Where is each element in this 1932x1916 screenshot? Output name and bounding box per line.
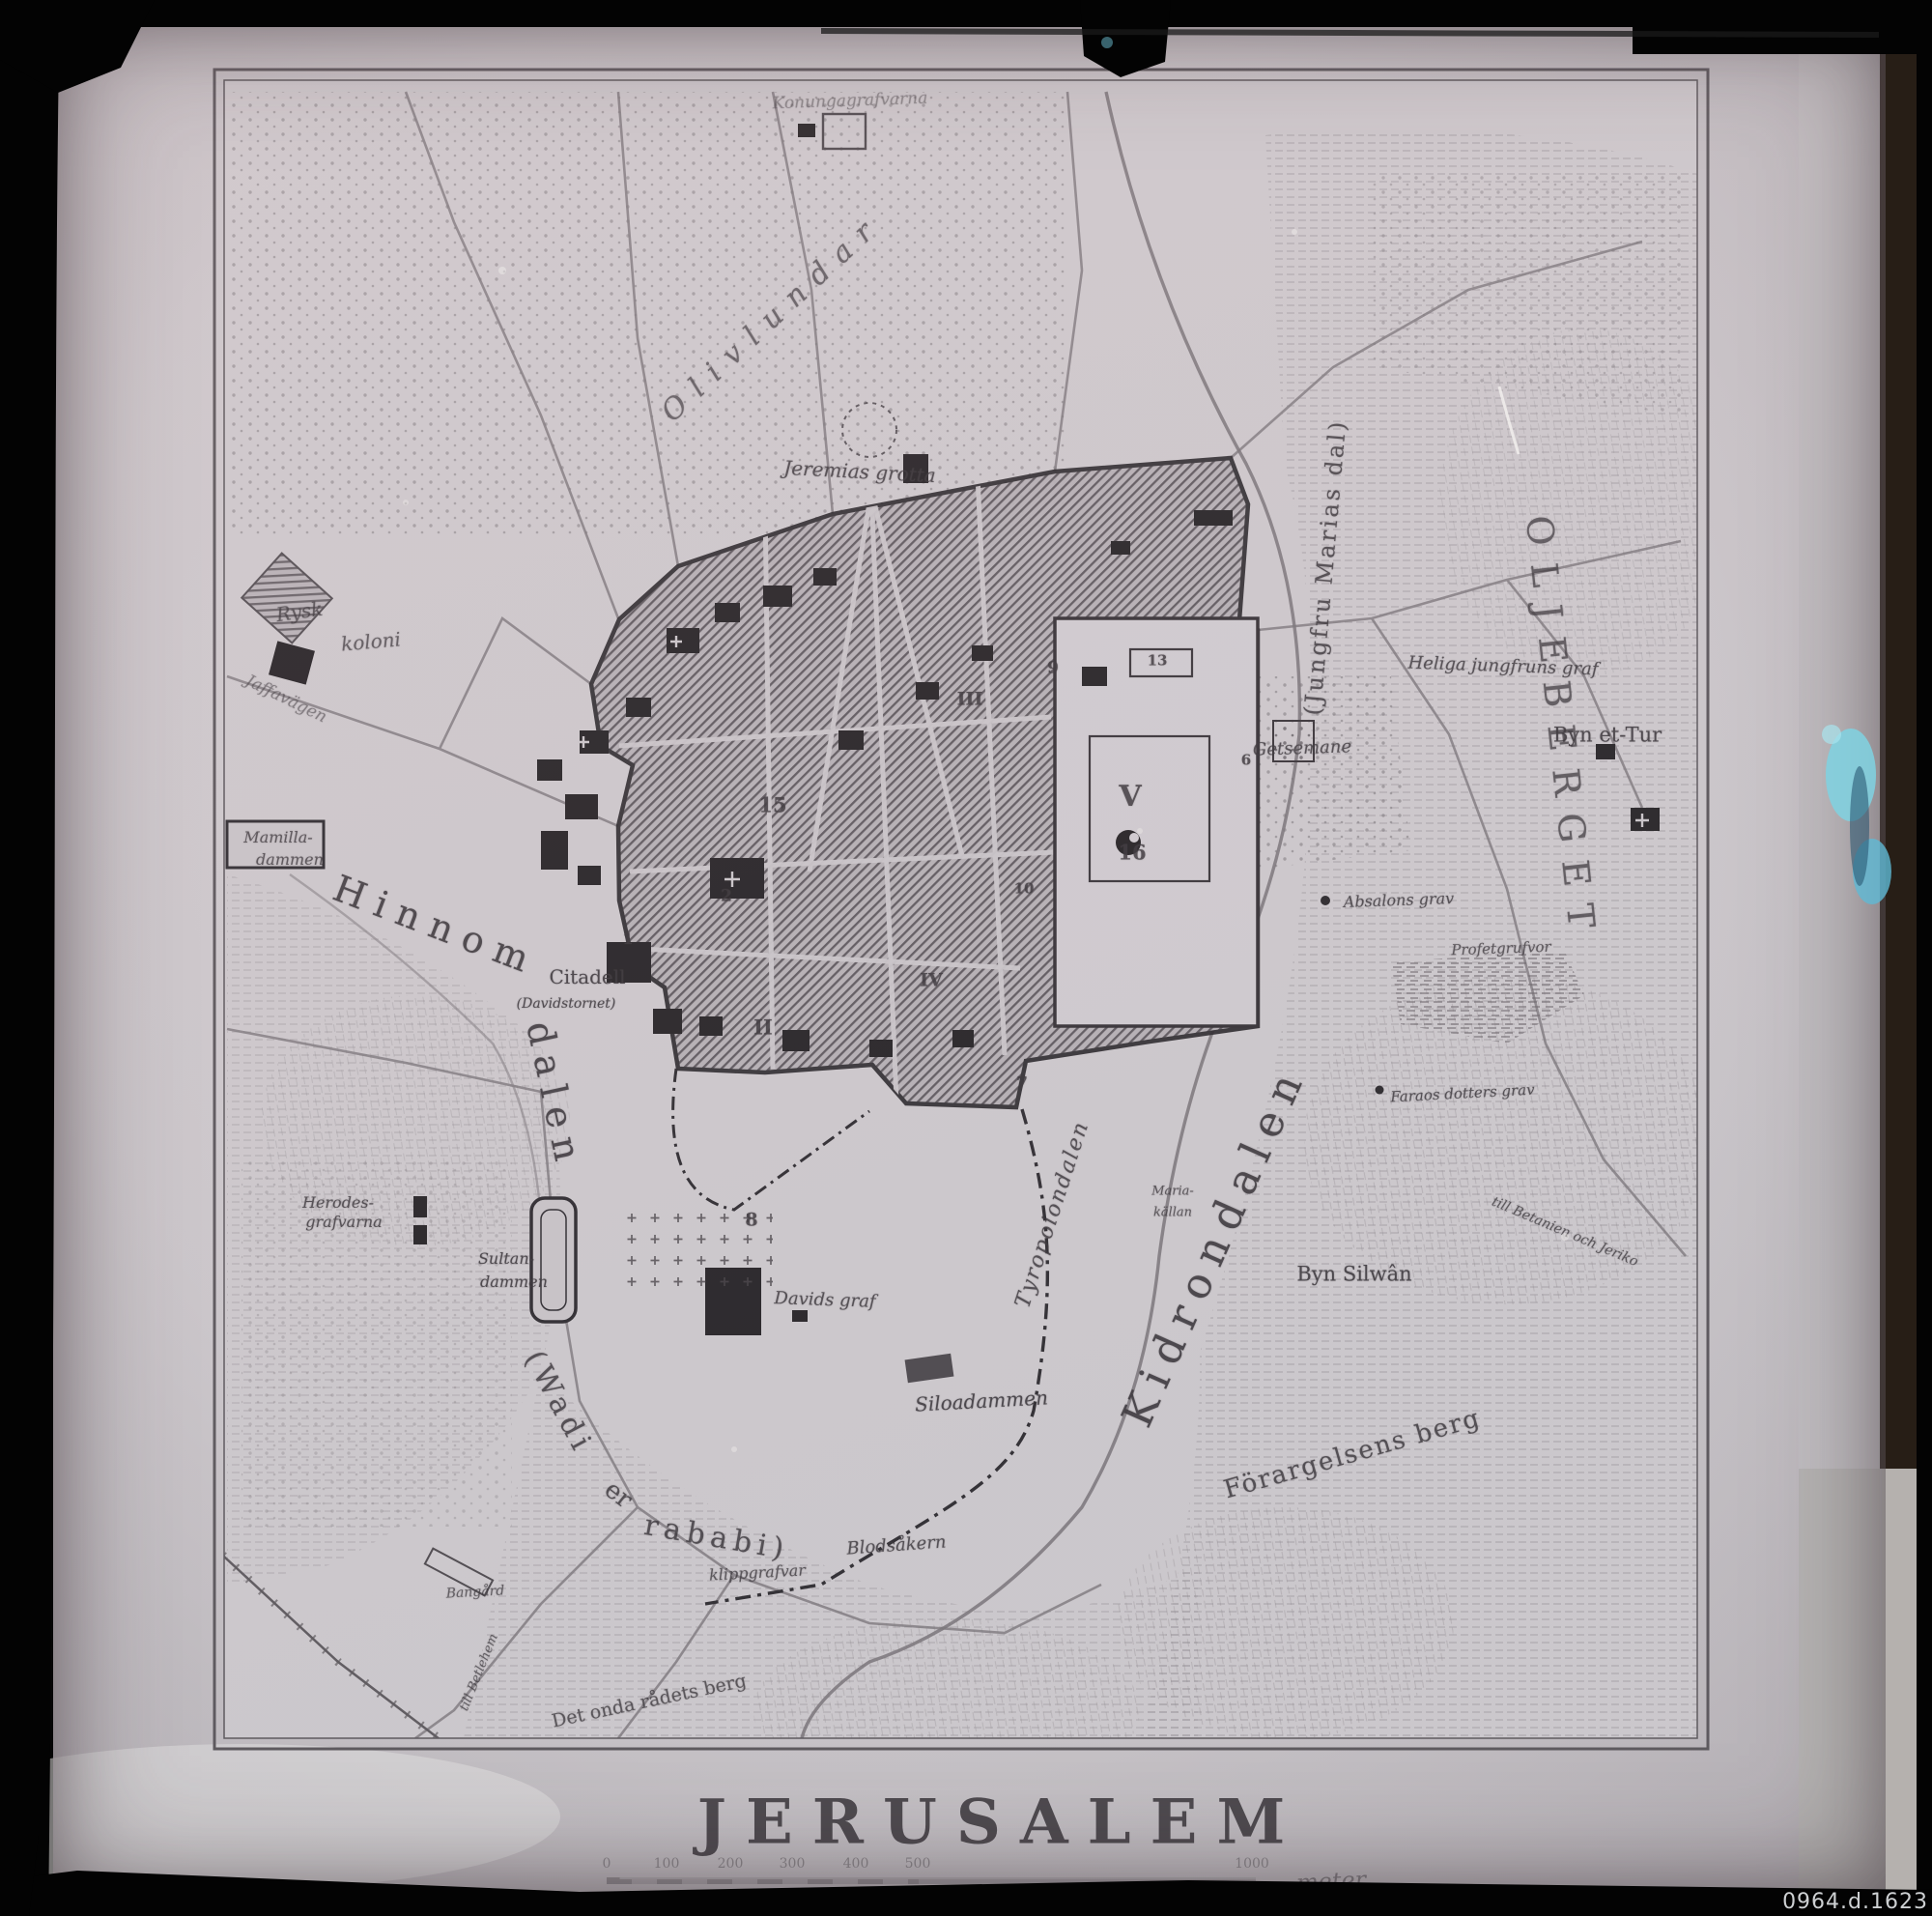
black-border	[0, 0, 1932, 1916]
scratches-dust	[403, 229, 1569, 1452]
lantern-slide-photo: KonungagrafvarnaOlivlundarJeremias grott…	[0, 0, 1932, 1916]
catalog-number: 0964.d.1623	[1782, 1890, 1928, 1914]
color-artifacts	[1101, 37, 1891, 904]
slide-frame-artwork	[0, 0, 1932, 1916]
